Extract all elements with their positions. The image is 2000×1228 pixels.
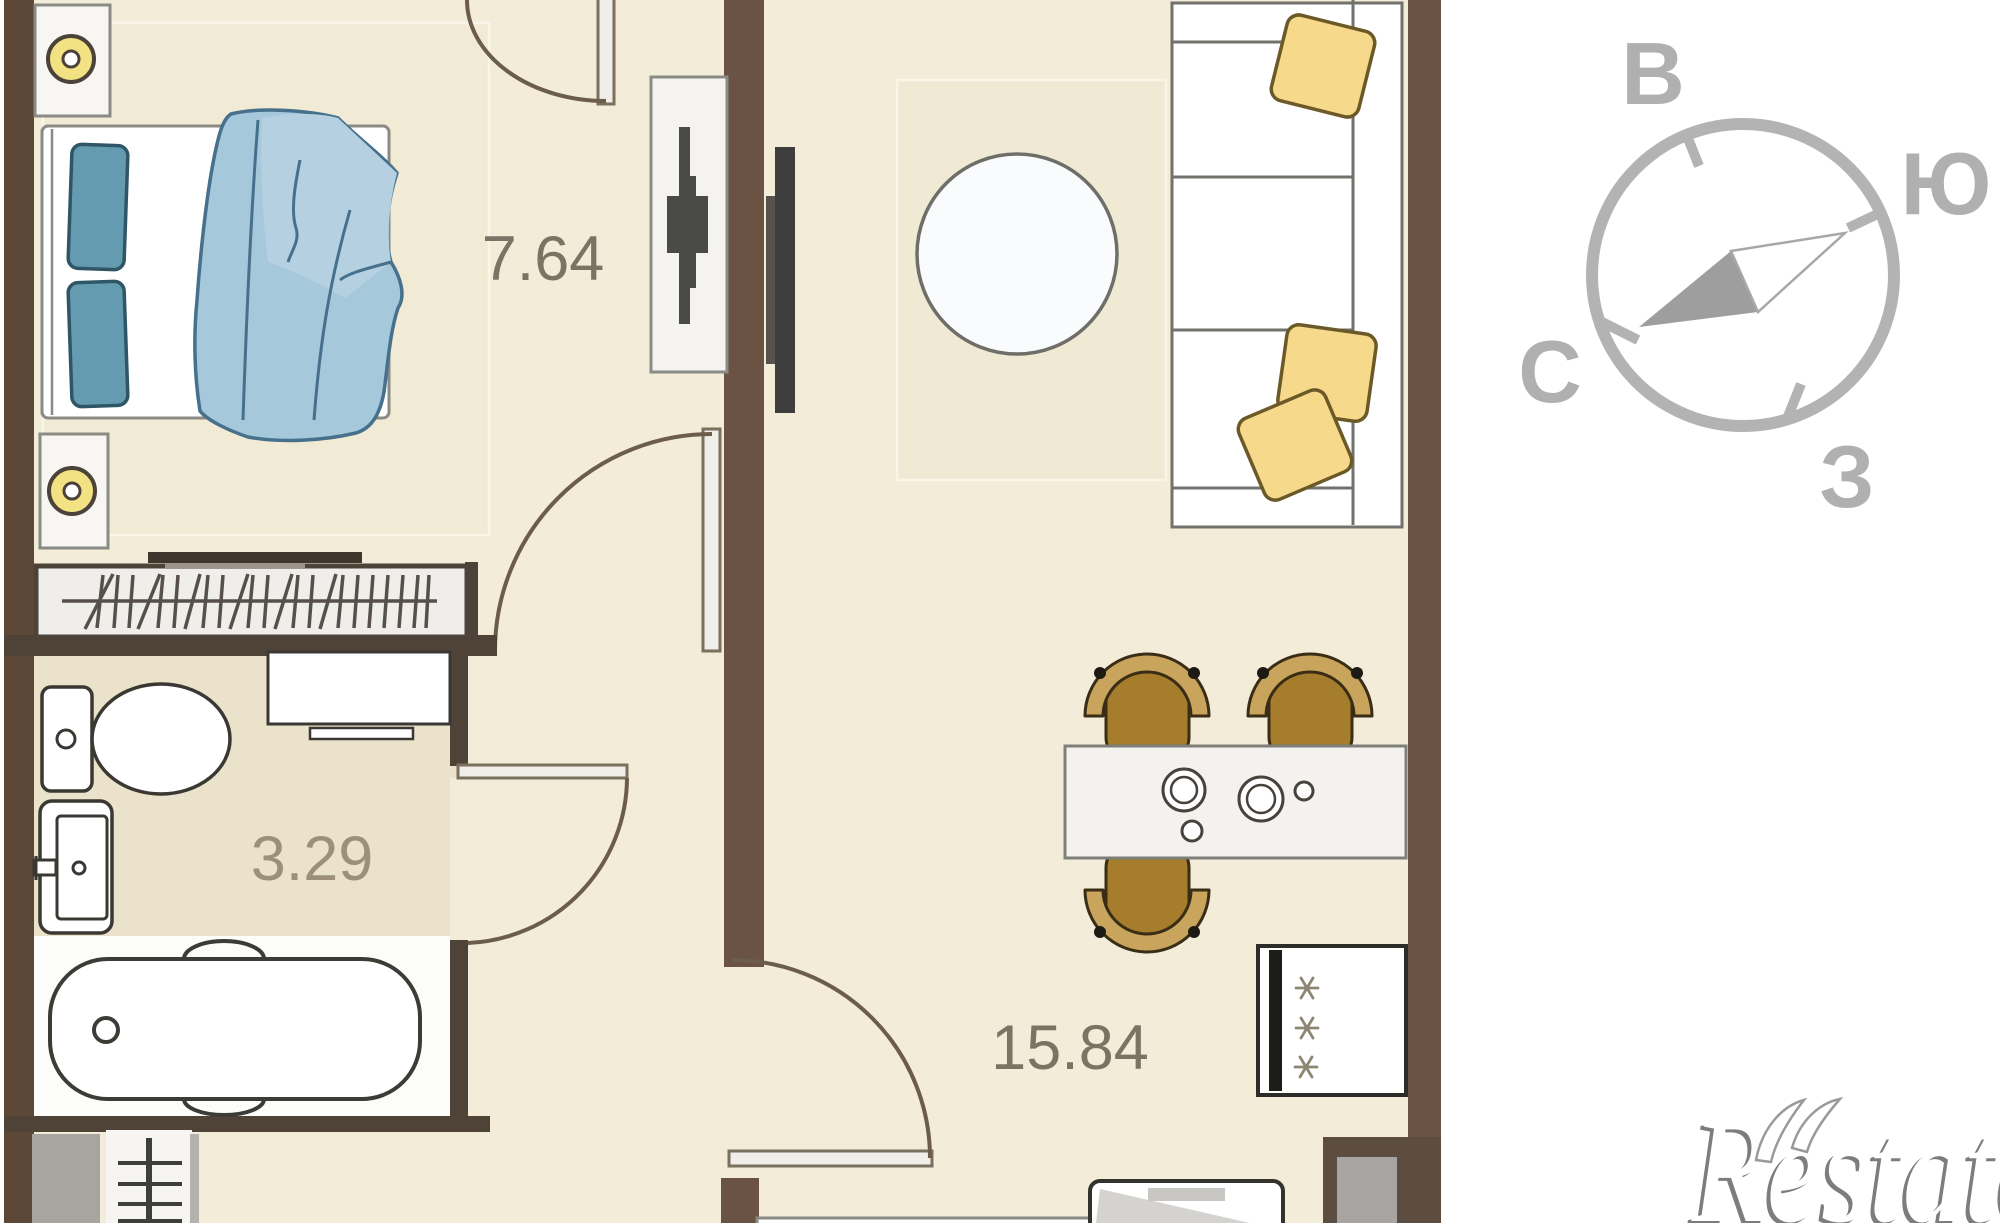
svg-text:15.84: 15.84 — [991, 1013, 1149, 1083]
svg-text:С: С — [1518, 322, 1582, 421]
svg-text:З: З — [1819, 427, 1874, 526]
svg-text:3.29: 3.29 — [251, 824, 374, 894]
svg-text:Restate: Restate — [1691, 1088, 2000, 1223]
svg-text:В: В — [1621, 24, 1685, 123]
svg-text:7.64: 7.64 — [482, 224, 605, 294]
svg-text:Ю: Ю — [1901, 134, 1992, 233]
